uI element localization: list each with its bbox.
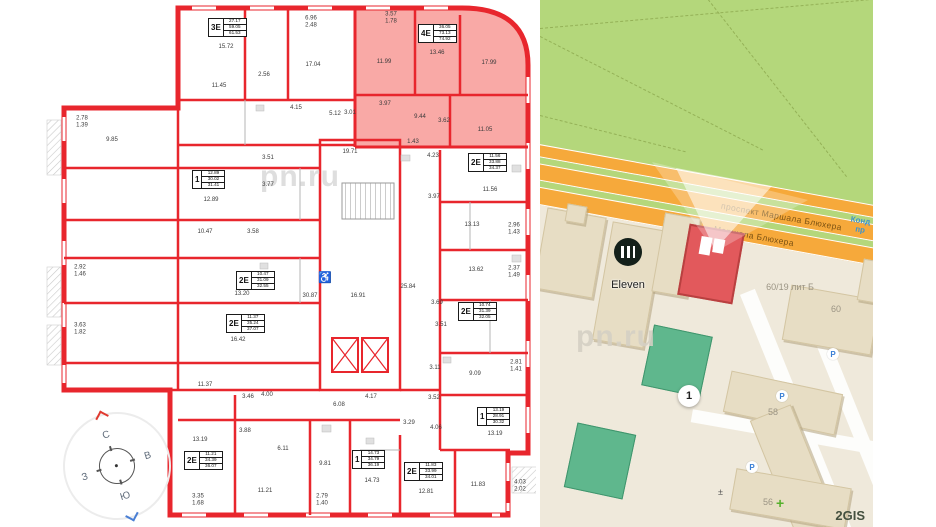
wheelchair-icon: ♿ — [318, 271, 332, 284]
room-area-label: 13.46 — [429, 50, 444, 57]
room-area-label: 19.71 — [342, 149, 357, 156]
elevators — [332, 338, 388, 372]
room-area-label: 9.81 — [319, 461, 331, 468]
map-attribution-2gis[interactable]: 2GIS — [835, 508, 865, 523]
room-area-label: 3.35 1.68 — [192, 494, 204, 507]
unit-label[interactable]: 3Е 27.17 59.05 61.53 — [208, 18, 247, 37]
building-number-label: 56 — [763, 497, 773, 507]
room-area-label: 3.97 — [379, 101, 391, 108]
plan-watermark: pn.ru — [260, 160, 340, 194]
room-area-label: 2.92 1.46 — [74, 265, 86, 278]
compass-west: З — [80, 471, 89, 483]
room-area-label: 16.91 — [350, 293, 365, 300]
room-area-label: 11.83 — [471, 482, 486, 489]
compass-north: С — [101, 429, 111, 442]
unit-label[interactable]: 2Е 10.74 31.39 32.05 — [458, 302, 497, 321]
room-area-label: 13.19 — [192, 437, 207, 444]
room-area-label: 4.15 — [290, 105, 302, 112]
parking-icon: P — [776, 390, 788, 402]
room-area-label: 11.56 — [483, 187, 498, 194]
room-area-label: 11.21 — [258, 488, 273, 495]
room-area-label: 11.37 — [198, 382, 213, 389]
room-area-label: 3.52 — [428, 395, 440, 402]
unit-label[interactable]: 2Е 11.37 35.24 37.07 — [226, 314, 265, 333]
room-area-label: 15.72 — [218, 44, 233, 51]
poi-eleven-icon[interactable] — [614, 238, 642, 266]
map[interactable]: проспект Маршала Блюхера 48 Маршала Блюх… — [540, 0, 873, 527]
room-area-label: 3.29 — [403, 420, 415, 427]
building-number-label: 58 — [768, 407, 778, 417]
floorplan-and-map-widget: pn.ru ♿ 15.72 11.45 2.56 — [0, 0, 936, 527]
selected-building[interactable] — [677, 224, 745, 305]
room-area-label: 3.58 — [247, 229, 259, 236]
unit-label[interactable]: 2Е 11.21 34.39 36.07 — [184, 451, 223, 470]
room-area-label: 16.42 — [230, 337, 245, 344]
room-area-label: 4.00 — [261, 392, 273, 399]
building-small — [565, 203, 588, 224]
unit-label[interactable]: 4Е 36.05 73.13 74.92 — [418, 24, 457, 43]
room-area-label: 9.09 — [469, 371, 481, 378]
room-area-label: 4.23 — [427, 153, 439, 160]
room-area-label: 3.11 — [429, 365, 440, 372]
building-green — [564, 422, 636, 499]
room-area-label: 3.51 — [262, 155, 274, 162]
unit-label[interactable]: 1 14.73 34.79 36.19 — [352, 450, 385, 469]
room-area-label: 13.20 — [234, 291, 249, 298]
room-area-label: 11.05 — [478, 127, 493, 134]
unit-label[interactable]: 2Е 11.56 33.88 34.37 — [468, 153, 507, 172]
room-area-label: 2.78 1.39 — [76, 116, 88, 129]
room-area-label: 3.63 1.82 — [74, 323, 86, 336]
poi-eleven-label: Eleven — [611, 279, 645, 291]
room-area-label: 3.88 — [239, 428, 251, 435]
room-area-label: 11.99 — [377, 59, 392, 66]
pharmacy-icon: + — [776, 495, 784, 511]
room-area-label: 3.62 — [438, 118, 450, 125]
stairs — [342, 183, 394, 219]
room-area-label: 13.19 — [487, 431, 502, 438]
room-area-label: 4.17 — [365, 394, 377, 401]
room-area-label: 17.99 — [481, 60, 496, 67]
compass-south: Ю — [119, 490, 132, 503]
room-area-label: 2.96 1.43 — [508, 223, 520, 236]
eleven-logo-icon — [621, 246, 635, 258]
room-area-label: 3.51 — [435, 322, 447, 329]
room-area-label: 2.37 1.49 — [508, 266, 520, 279]
room-area-label: 4.03 2.02 — [514, 480, 526, 493]
room-area-label: 17.04 — [305, 62, 320, 69]
unit-label[interactable]: 1 13.19 28.91 30.32 — [477, 407, 510, 426]
unit-label[interactable]: 2Е 11.83 33.99 34.01 — [404, 462, 443, 481]
room-area-label: 3.01 — [344, 110, 356, 117]
room-area-label: 6.96 2.48 — [305, 16, 317, 29]
cross-street-label: Конд пр — [849, 215, 871, 236]
room-area-label: 12.89 — [203, 197, 218, 204]
parking-icon: P — [746, 461, 758, 473]
room-area-label: 25.84 — [400, 284, 415, 291]
building-number-label: 60 — [831, 304, 841, 314]
entrance-icon: ± — [718, 487, 723, 497]
room-area-label: 14.73 — [364, 478, 379, 485]
room-area-label: 3.46 — [242, 394, 254, 401]
room-area-label: 12.81 — [418, 489, 433, 496]
room-area-label: 6.11 — [277, 446, 288, 453]
room-area-label: 2.81 1.41 — [510, 360, 522, 373]
room-area-label: 6.08 — [333, 402, 345, 409]
room-area-label: 30.87 — [302, 293, 317, 300]
room-area-label: 13.13 — [464, 222, 479, 229]
room-area-label: 4.06 — [430, 425, 442, 432]
map-watermark: pn.ru — [576, 320, 656, 354]
unit-label[interactable]: 2Е 10.47 31.09 32.55 — [236, 271, 275, 290]
room-area-label: 13.62 — [468, 267, 483, 274]
room-area-label: 9.85 — [106, 137, 118, 144]
room-area-label: 2.79 1.40 — [316, 494, 328, 507]
room-area-label: 3.77 — [262, 182, 274, 189]
building-56 — [729, 468, 852, 527]
room-area-label: 10.47 — [197, 229, 212, 236]
room-area-label: 9.44 — [414, 114, 426, 121]
room-area-label: 3.57 1.78 — [385, 12, 397, 25]
room-area-label: 1.43 — [407, 139, 419, 146]
compass-east: В — [143, 450, 153, 462]
building-number-label: 60/19 лит Б — [766, 282, 814, 292]
unit-label[interactable]: 1 12.89 30.02 31.41 — [192, 170, 225, 189]
parking-icon: P — [827, 348, 839, 360]
map-marker-1[interactable]: 1 — [678, 385, 700, 407]
room-area-label: 5.12 — [329, 111, 341, 118]
room-area-label: 11.45 — [212, 83, 227, 90]
room-area-label: 2.56 — [258, 72, 270, 79]
room-area-label: 3.97 — [428, 194, 440, 201]
room-area-label: 3.69 — [431, 300, 443, 307]
